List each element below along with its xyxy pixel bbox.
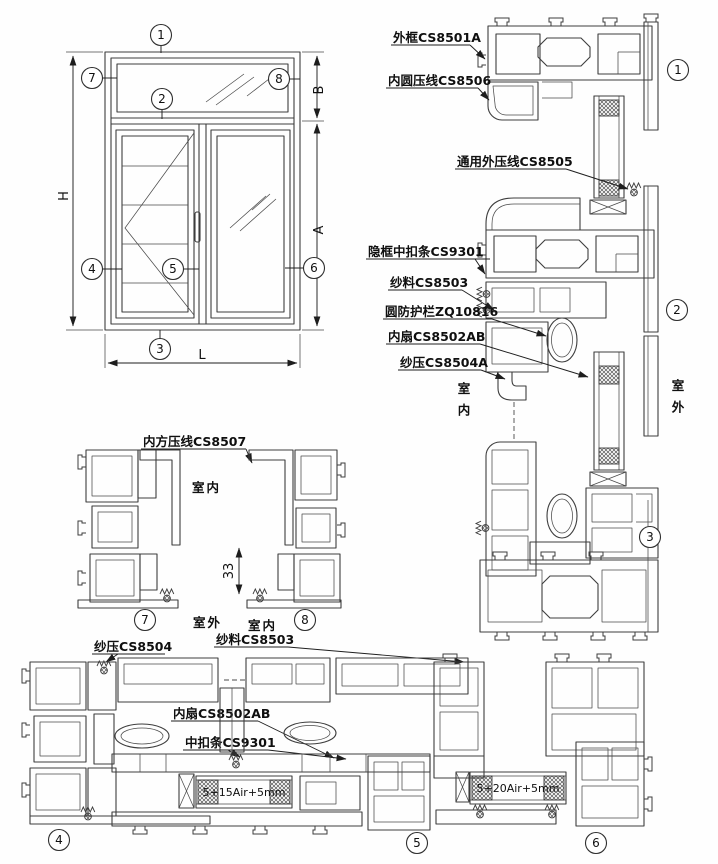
screen-sash-leaf xyxy=(116,130,200,318)
glass-spec-2: 5+20Air+5mm xyxy=(477,782,560,795)
callout-3: 3 xyxy=(156,342,164,356)
callout-7: 7 xyxy=(88,71,96,85)
dimension-b-a: B A xyxy=(302,52,327,330)
dimension-33: 33 xyxy=(222,548,239,594)
callout-4: 4 xyxy=(88,262,96,276)
dim-b-label: B xyxy=(312,86,327,95)
glass-unit-fixed-upper xyxy=(590,96,641,214)
callout-5: 5 xyxy=(413,836,421,850)
label-screen-mesh: 纱料CS8503 xyxy=(390,275,468,290)
label-screen-bead-a: 纱压CS8504A xyxy=(400,355,488,370)
outdoor-label: 室外 xyxy=(670,378,685,422)
label-universal-outer-bead: 通用外压线CS8505 xyxy=(457,154,573,169)
outdoor-label: 室外 xyxy=(193,615,222,630)
dim-h-label: H xyxy=(57,191,72,201)
callout-5: 5 xyxy=(169,262,177,276)
oval-chamber xyxy=(115,724,169,748)
label-screen-bead: 纱压CS8504 xyxy=(94,639,173,654)
label-middle-clip: 中扣条CS9301 xyxy=(185,735,276,750)
label-inner-round-bead: 内圆压线CS8506 xyxy=(388,73,492,88)
label-outer-frame: 外框CS8501A xyxy=(392,30,481,45)
seal-clip xyxy=(476,521,489,535)
screen-rail-profiles xyxy=(115,658,468,768)
callout-1: 1 xyxy=(157,28,165,42)
indoor-label: 室内 xyxy=(192,480,221,495)
dim-l-label: L xyxy=(198,348,206,363)
drawing-canvas: H B A L 1 2 3 4 5 6 7 8 xyxy=(0,0,718,864)
detail-7-profile xyxy=(78,450,180,608)
seal-clip xyxy=(97,661,111,674)
horizontal-section-detail: 纱压CS8504 纱料CS8503 内扇CS8502AB 中扣条CS9301 4 xyxy=(22,632,652,854)
dim-a-label: A xyxy=(312,225,327,234)
bead-detail-section: 内方压线CS8507 室内 33 xyxy=(78,434,345,633)
sash-hook xyxy=(498,372,526,400)
profile-section-drawing-sheet: H B A L 1 2 3 4 5 6 7 8 xyxy=(0,0,718,864)
window-elevation: H B A L 1 2 3 4 5 6 7 8 xyxy=(57,25,327,369)
window-frame xyxy=(105,52,300,330)
dimension-h: H xyxy=(57,52,103,330)
glass-spec-1: 5+15Air+5mm xyxy=(203,786,286,799)
elevation-callouts: 1 2 3 4 5 6 7 8 xyxy=(82,25,325,360)
label-hidden-frame-clip: 隐框中扣条CS9301 xyxy=(368,244,484,259)
seal-clip xyxy=(627,183,641,196)
indoor-label-2: 室内 xyxy=(248,618,277,633)
callout-8: 8 xyxy=(301,613,309,627)
seal-clip xyxy=(473,805,487,818)
dim-33-label: 33 xyxy=(222,563,237,580)
indoor-label: 室内 xyxy=(456,381,471,425)
transom-profile xyxy=(477,186,658,486)
swing-symbol xyxy=(125,133,194,315)
callout-3: 3 xyxy=(646,530,654,544)
callout-4: 4 xyxy=(55,833,63,847)
section-callouts: 1 2 3 xyxy=(640,60,689,548)
glass-unit-fixed-lower xyxy=(590,352,626,486)
seal-clip xyxy=(477,287,490,301)
bottom-labels: 纱压CS8504 纱料CS8503 内扇CS8502AB 中扣条CS9301 xyxy=(92,632,464,759)
sill-profile xyxy=(476,442,658,640)
glass-sash-leaf xyxy=(211,130,290,318)
label-inner-square-bead: 内方压线CS8507 xyxy=(143,434,246,449)
sash-row-left: 5+15Air+5mm xyxy=(112,754,430,834)
callout-2: 2 xyxy=(158,92,166,106)
seal-clip xyxy=(229,755,243,768)
callout-6: 6 xyxy=(310,261,318,275)
glass-unit-2: 5+20Air+5mm xyxy=(470,772,566,804)
detail-8-profile: 33 xyxy=(222,450,345,608)
sash-row-right: 5+20Air+5mm xyxy=(434,654,652,826)
label-screen-mesh: 纱料CS8503 xyxy=(216,632,294,647)
vertical-section-detail: 外框CS8501A 内圆压线CS8506 通用外压线CS8505 隐框中扣条CS… xyxy=(366,14,689,640)
glass-hatch-upper xyxy=(206,74,269,105)
glass-hatch-lower xyxy=(230,194,276,231)
glass-unit-1: 5+15Air+5mm xyxy=(196,776,292,808)
callout-7: 7 xyxy=(141,613,149,627)
dimension-l: L xyxy=(105,334,300,368)
jamb-profile-left xyxy=(22,661,210,824)
head-frame-profile xyxy=(478,14,658,130)
seal-clip xyxy=(545,805,559,818)
callout-6: 6 xyxy=(592,836,600,850)
label-round-guard: 圆防护栏ZQ10816 xyxy=(385,304,498,319)
callout-8: 8 xyxy=(275,72,283,86)
callout-1: 1 xyxy=(674,63,682,77)
label-inner-sash: 内扇CS8502AB xyxy=(173,706,270,721)
callout-2: 2 xyxy=(673,303,681,317)
label-inner-sash: 内扇CS8502AB xyxy=(388,329,485,344)
